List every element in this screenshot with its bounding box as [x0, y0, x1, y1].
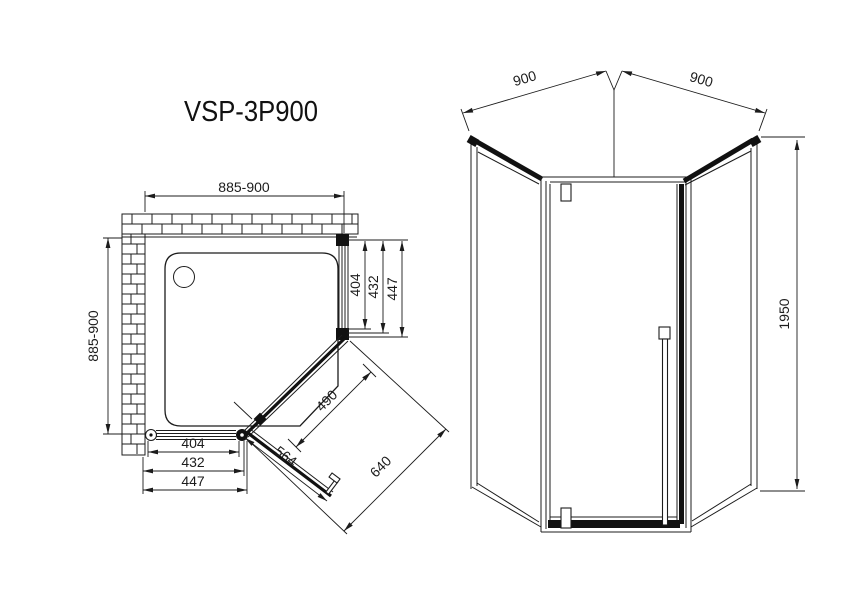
shower-enclosure-drawing: VSP-3P900 — [0, 0, 861, 609]
door-panel-dimension: 564 — [244, 436, 329, 503]
top-wall-brick-joints-row1 — [132, 214, 352, 224]
door-top-rail — [541, 177, 691, 182]
right-dim-432: 432 — [365, 275, 381, 299]
left-post — [471, 138, 477, 489]
page-title: VSP-3P900 — [184, 96, 318, 128]
left-top-rail — [472, 139, 542, 179]
left-bottom-rail — [472, 483, 541, 527]
right-dim-447: 447 — [384, 277, 400, 301]
technical-drawing-canvas: VSP-3P900 — [0, 0, 861, 609]
tray-outline — [165, 253, 338, 426]
right-panel-width-label: 900 — [688, 68, 715, 90]
elevation-left-panel — [467, 135, 542, 527]
left-panel-width-label: 900 — [511, 67, 538, 89]
door-handle-head — [659, 327, 670, 339]
left-dim-extensions — [103, 238, 145, 434]
apex-break-mark — [606, 71, 622, 90]
top-width-label: 885-900 — [218, 179, 270, 195]
door-left-stile — [541, 177, 550, 532]
door-bottom-hinge — [561, 508, 571, 528]
elevation-right-panel — [684, 135, 761, 527]
top-dim-extensions — [145, 191, 344, 233]
left-glass-top-edge — [478, 152, 539, 184]
wall-clamp-dot — [149, 433, 152, 436]
bottom-dim-447: 447 — [181, 473, 205, 489]
plan-view: VSP-3P900 — [85, 96, 449, 534]
dim490-line — [296, 372, 371, 447]
right-post — [751, 139, 757, 489]
right-top-rail — [684, 140, 753, 181]
left-wall — [122, 234, 145, 455]
door-handle-bar — [663, 339, 668, 525]
elevation-door — [541, 177, 691, 532]
plan-right-dimensions: 404 432 447 — [347, 240, 408, 337]
left-wall-courses — [122, 244, 145, 444]
door-top-hinge — [561, 184, 571, 201]
dim640-extensions — [247, 341, 449, 534]
plan-top-width-dimension: 885-900 — [145, 179, 344, 233]
right-bottom-rail — [691, 484, 757, 527]
corner-opening-label: 640 — [367, 452, 395, 480]
elevation-height-dimension: 1950 — [760, 137, 805, 491]
pivot-hinge-dot — [240, 433, 244, 437]
wall-bracket-block — [336, 234, 349, 246]
plan-left-depth-dimension: 885-900 — [85, 238, 145, 434]
right-dim-404: 404 — [347, 273, 363, 297]
drain-circle — [174, 267, 195, 288]
door-glass-width-label: 490 — [313, 386, 341, 414]
top-wall-brick-joints-row2 — [142, 224, 342, 234]
bottom-dim-404: 404 — [181, 435, 205, 451]
handle-knob — [329, 473, 340, 483]
height-label: 1950 — [776, 298, 792, 329]
door-closed — [244, 335, 348, 437]
bottom-dim-432: 432 — [181, 454, 205, 470]
plan-bottom-dimensions: 404 432 447 — [143, 435, 247, 494]
corner-opening-dimension: 640 — [247, 341, 449, 534]
top-wall — [122, 214, 358, 237]
door-right-seal — [679, 184, 684, 524]
shower-tray — [165, 253, 338, 426]
elevation-view: 900 900 1950 — [461, 67, 805, 532]
left-depth-label: 885-900 — [85, 310, 101, 362]
right-glass-top-edge — [685, 151, 751, 185]
dim640-line — [344, 429, 446, 531]
